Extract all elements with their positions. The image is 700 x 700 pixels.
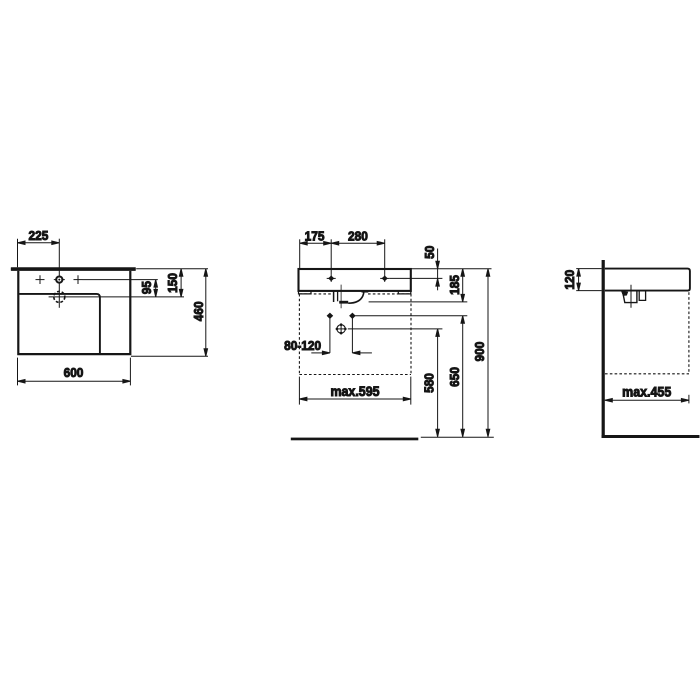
- svg-text:175: 175: [305, 229, 325, 243]
- svg-text:95: 95: [139, 281, 153, 294]
- svg-text:150: 150: [166, 273, 180, 293]
- svg-text:280: 280: [348, 229, 368, 243]
- svg-text:900: 900: [473, 342, 487, 362]
- svg-text:50: 50: [422, 246, 436, 259]
- svg-text:max.595: max.595: [330, 383, 379, 399]
- svg-text:650: 650: [448, 367, 462, 387]
- svg-text:120: 120: [563, 270, 577, 290]
- svg-text:460: 460: [191, 301, 205, 321]
- svg-text:185: 185: [448, 275, 462, 295]
- svg-text:580: 580: [422, 373, 436, 393]
- svg-text:225: 225: [28, 229, 48, 243]
- svg-text:80-120: 80-120: [284, 339, 321, 353]
- svg-text:600: 600: [64, 366, 84, 380]
- svg-text:max.455: max.455: [622, 384, 671, 400]
